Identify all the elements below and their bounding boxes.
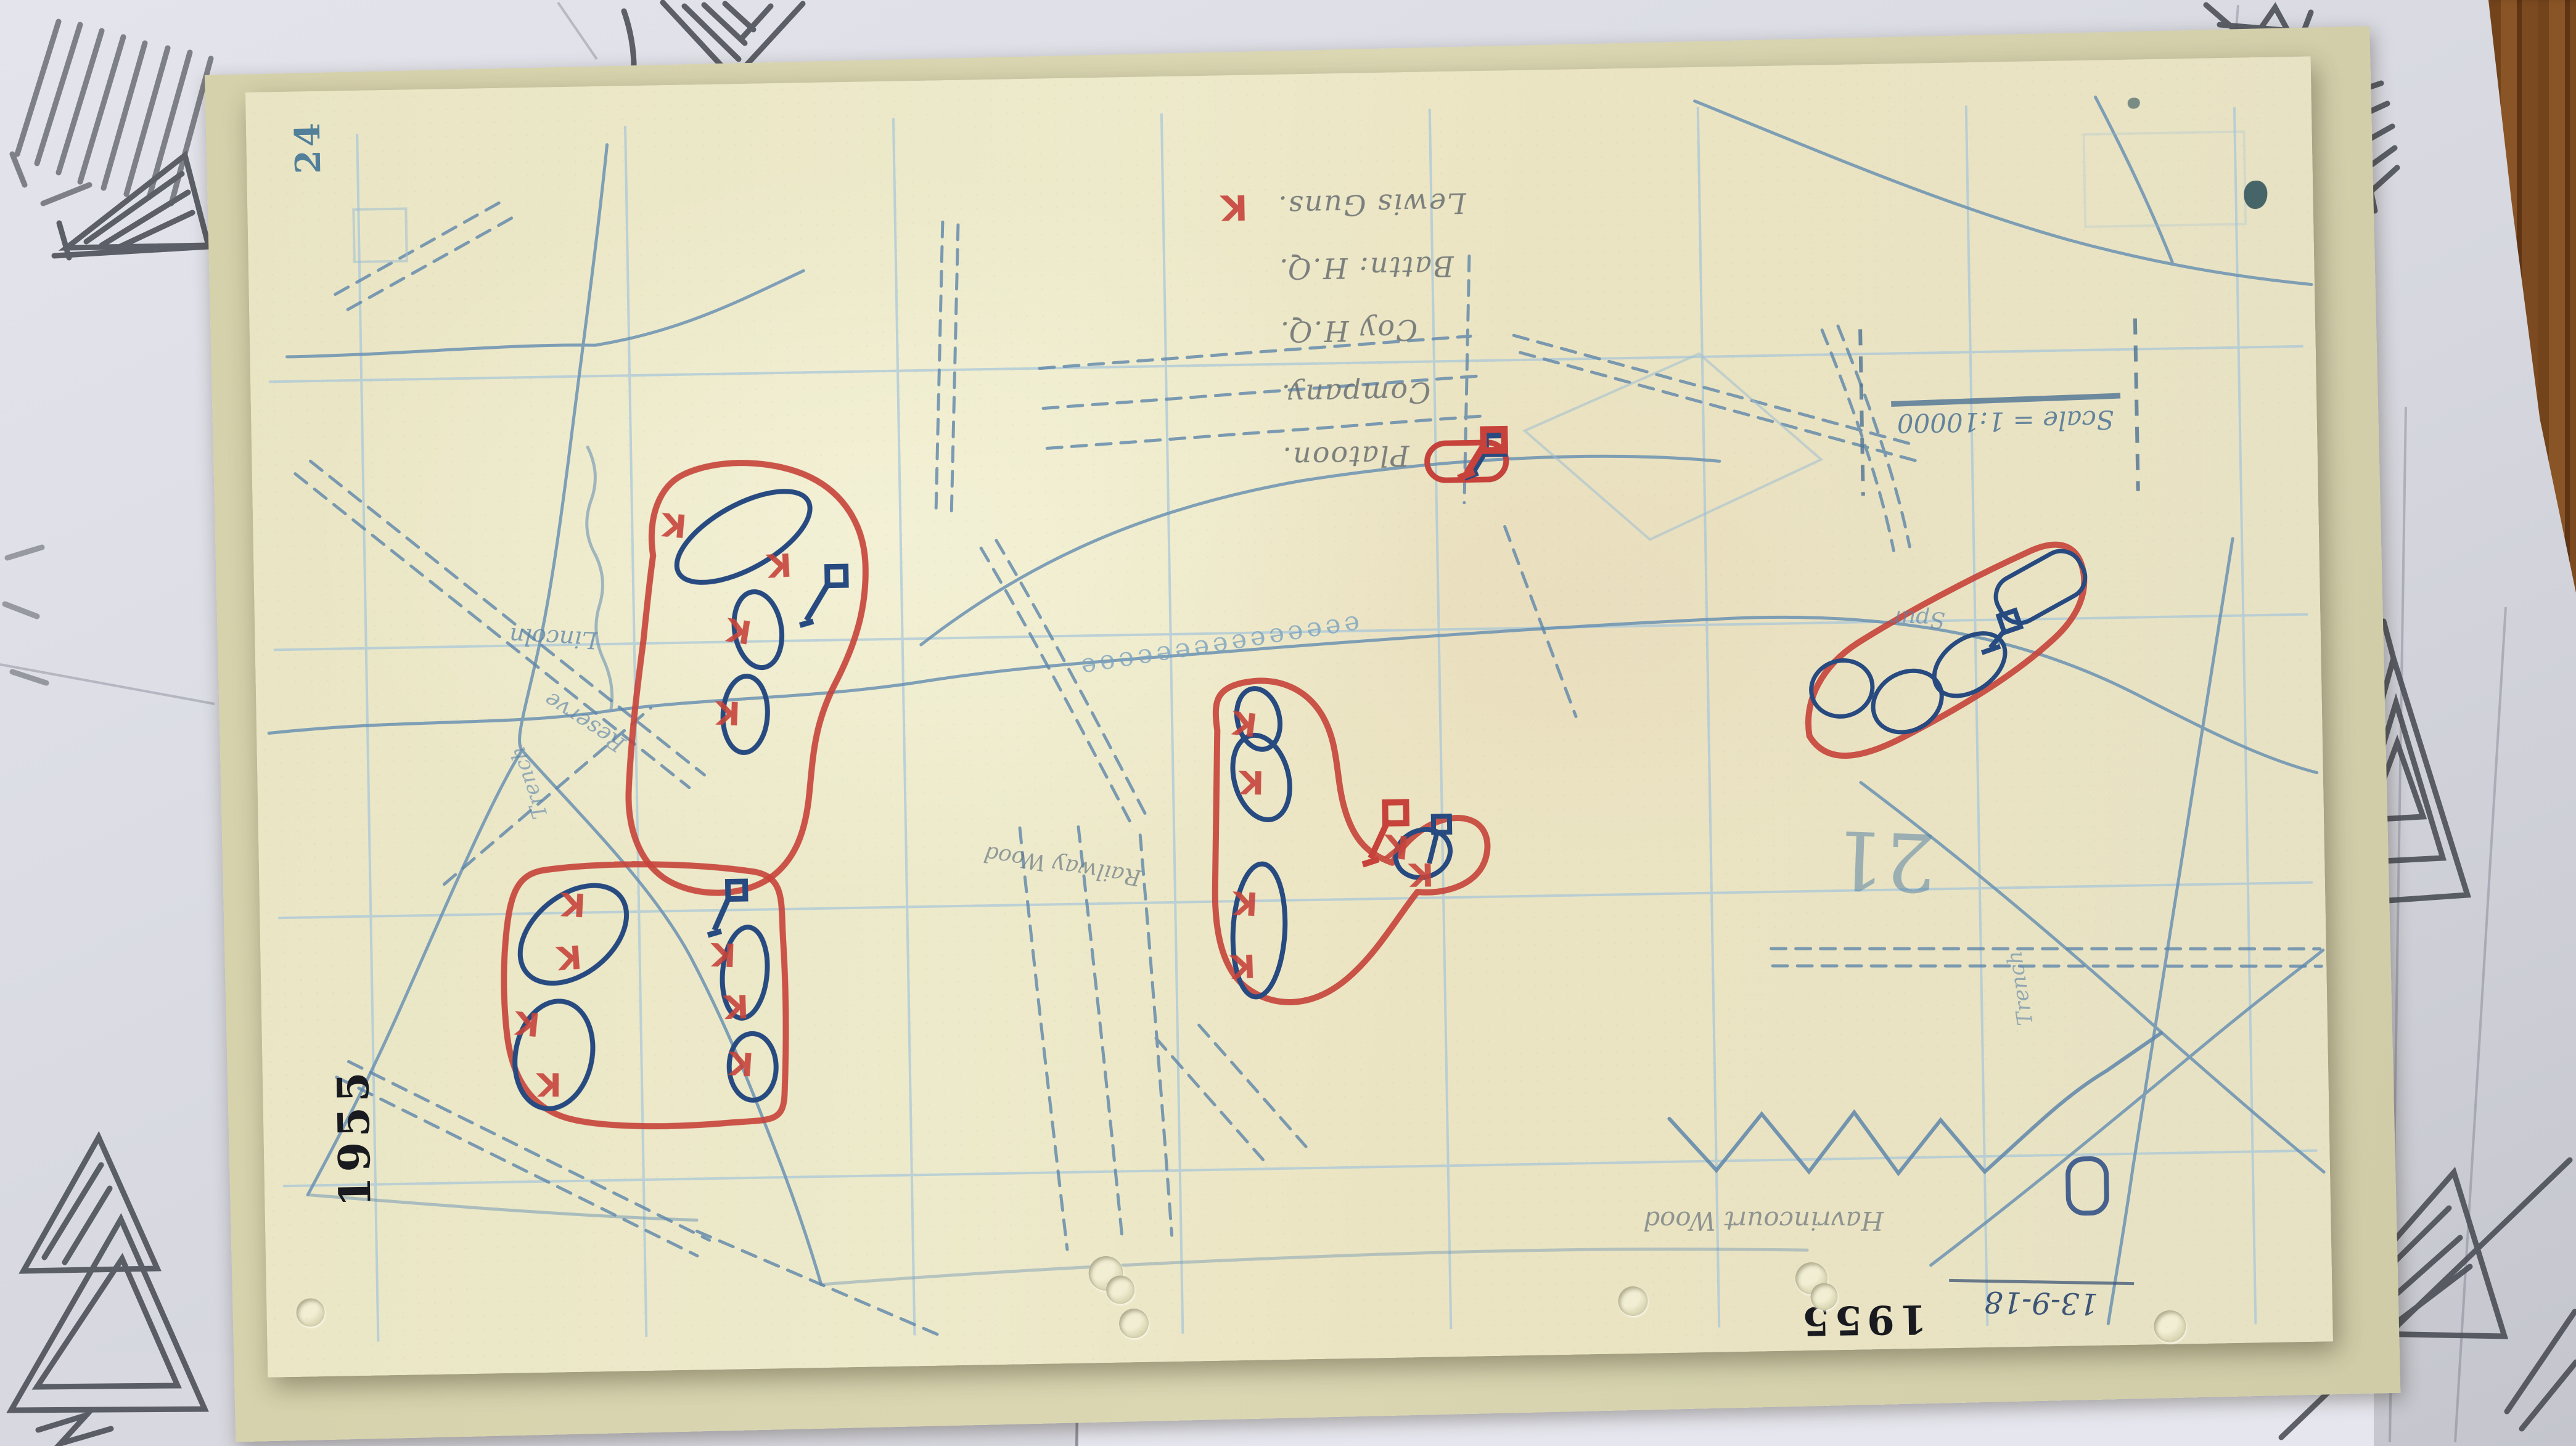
map-label-lincoln: Lincoln	[509, 623, 599, 654]
svg-text:K: K	[659, 505, 688, 544]
svg-text:K: K	[722, 987, 749, 1024]
stamp-1955-left: 1955	[327, 1065, 377, 1207]
legend-row-lewis-guns: Lewis Guns. K	[1104, 174, 1506, 237]
svg-text:K: K	[710, 935, 737, 973]
legend-label: Lewis Guns.	[1277, 186, 1506, 223]
svg-text:K: K	[512, 1003, 541, 1043]
legend-row-company: Company.	[1107, 362, 1509, 426]
platoon-symbol	[1140, 458, 1282, 460]
legend-label: Coy H.Q.	[1279, 311, 1508, 348]
platoon-oval	[1862, 659, 1953, 744]
nested-triangle-bottom-left	[11, 1137, 205, 1444]
svg-text:K: K	[1229, 703, 1259, 743]
page-number: 24	[287, 107, 327, 187]
company-group-d	[1802, 543, 2095, 756]
legend-row-coy-hq: Coy H.Q.	[1106, 300, 1508, 363]
map-label-spur: Spur	[1889, 605, 1945, 632]
svg-text:K: K	[1231, 883, 1259, 921]
triangle-doodle-top-left	[54, 155, 229, 258]
svg-text:K: K	[1408, 856, 1434, 893]
map-label-trench-left: Trench	[506, 743, 554, 822]
date-annotation: 13-9-18	[1948, 1279, 2134, 1321]
lewis-gun-k-marks: K K K K K K K K K K K K K K K K K	[502, 491, 1437, 1103]
platoon-oval	[663, 473, 824, 600]
lewis-gun-k-symbol: K	[1221, 187, 1249, 227]
legend-label: Battn: H.Q.	[1278, 248, 1507, 285]
scale-text: Scale = 1:10000	[1879, 398, 2132, 439]
map-legend: Platoon. Company. Coy H.Q.	[1104, 174, 1511, 489]
legend-row-battn-hq: Battn: H.Q.	[1105, 237, 1507, 300]
coy-hq-symbol	[1138, 332, 1279, 335]
map-label-reserve: Reserve	[540, 687, 630, 758]
svg-text:K: K	[726, 1044, 755, 1082]
svg-text:K: K	[554, 937, 583, 976]
small-marks-left	[5, 547, 46, 683]
coy-hq-flag-icon	[799, 566, 847, 625]
svg-text:K: K	[559, 884, 586, 923]
company-group-a	[623, 461, 871, 894]
grid-number-21: 21	[1832, 812, 1938, 910]
svg-text:K: K	[1238, 763, 1265, 801]
hedgerow-loop-row: eeeeeeeeeeeeeee	[1075, 610, 1362, 684]
svg-text:K: K	[1229, 947, 1256, 984]
svg-text:K: K	[1381, 827, 1410, 865]
photo-of-trench-map-document: eeeeeeeeeeeeeee 21	[0, 0, 2576, 1446]
battn-hq-flag-icon	[1448, 420, 1511, 483]
map-label-havrincourt-wood: Havrincourt Wood	[1643, 1206, 1884, 1236]
svg-text:K: K	[765, 545, 793, 584]
svg-text:K: K	[536, 1065, 562, 1102]
map-label-railway-wood: Railway Wood	[982, 841, 1144, 891]
detached-platoon-oval	[2068, 1159, 2107, 1214]
battn-hq-symbol	[1136, 269, 1278, 272]
map-sheet: eeeeeeeeeeeeeee 21	[245, 57, 2333, 1378]
svg-text:K: K	[723, 610, 754, 650]
company-symbol	[1139, 395, 1281, 398]
svg-text:K: K	[714, 693, 741, 731]
legend-label: Company.	[1280, 374, 1509, 411]
map-label-trench-right: Trench	[2002, 949, 2038, 1027]
